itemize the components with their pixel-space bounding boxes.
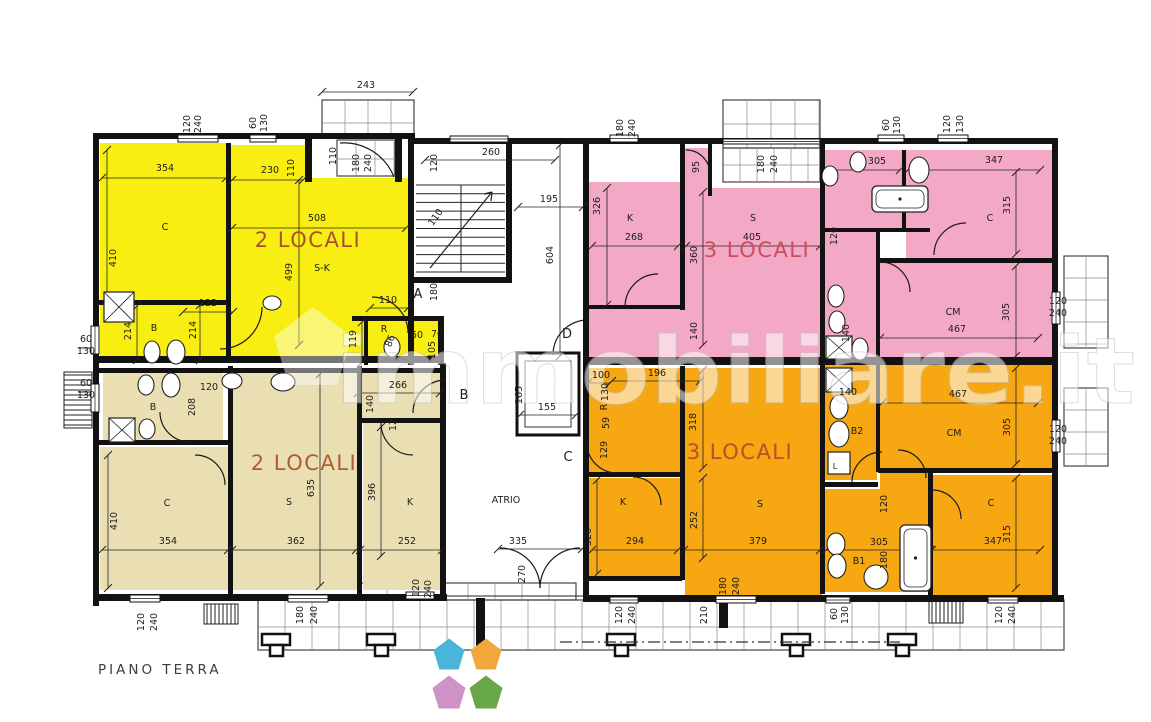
room-letter-label: B — [151, 323, 158, 334]
dimension-label: 260 — [482, 147, 500, 158]
dimension-label: 105 — [427, 341, 438, 359]
dimension-label: 100 — [592, 370, 610, 381]
terrace-pier — [262, 634, 290, 645]
room-letter-label: C — [162, 222, 169, 233]
dimension-label: 120 — [411, 579, 422, 597]
dimension-label: 360 — [689, 246, 700, 264]
wall — [226, 300, 231, 363]
dimension-label: 604 — [545, 246, 556, 264]
dimension-label: 140 — [839, 387, 857, 398]
dimension-label: 214 — [123, 322, 134, 340]
sanitary-fixture — [828, 554, 846, 578]
dimension-label: CM — [947, 428, 962, 439]
dimension-label: 130 — [600, 383, 611, 401]
dimension-label: 214 — [188, 321, 199, 339]
dimension-label: 12 — [388, 419, 399, 431]
dimension-label: 270 — [517, 565, 528, 583]
dimension-label: 70 — [431, 329, 443, 340]
dimension-label: 347 — [984, 536, 1002, 547]
terrace-pier — [790, 645, 803, 656]
dimension-label: 119 — [348, 330, 359, 348]
dimension-label: 354 — [156, 163, 174, 174]
dimension-label: 140 — [689, 322, 700, 340]
room-letter-label: C — [164, 498, 171, 509]
dimension-label: 305 — [868, 156, 886, 167]
dimension-label: 467 — [949, 389, 967, 400]
dimension-label: ATRIO — [492, 495, 520, 506]
dimension-label: 110 — [379, 295, 397, 306]
bathtub-drain — [898, 197, 901, 200]
terrace-pier — [615, 645, 628, 656]
sanitary-fixture — [167, 340, 185, 364]
wall — [305, 137, 312, 182]
dimension-label: 130 — [259, 114, 270, 132]
dimension-label: 120 — [136, 613, 147, 631]
sanitary-fixture — [144, 341, 160, 363]
dimension-label: B2 — [851, 426, 864, 437]
dimension-label: 95 — [691, 161, 702, 173]
hatch-strip — [204, 604, 238, 624]
room-letter-label: C — [987, 213, 994, 224]
room-letter-label: S — [757, 499, 763, 510]
wall — [680, 143, 685, 310]
dimension-label: 120 — [829, 227, 840, 245]
closet-box — [828, 452, 850, 474]
dimension-label: 379 — [749, 536, 767, 547]
wall — [395, 137, 402, 182]
dimension-label: 110 — [286, 159, 297, 177]
dimension-label: 335 — [509, 536, 527, 547]
dimension-label: 120 — [1049, 424, 1067, 435]
dimension-label: 165 — [514, 386, 525, 404]
dimension-label: 120 — [942, 115, 953, 133]
room-letter-label: K — [627, 213, 634, 224]
room-letter-label: B — [460, 388, 469, 403]
room-letter-label: B — [150, 402, 157, 413]
dimension-label: 180 — [351, 154, 362, 172]
terrace-pier — [782, 634, 810, 645]
dimension-label: 499 — [284, 263, 295, 281]
dimension-label: 180 — [615, 119, 626, 137]
room-letter-label: A — [414, 287, 423, 302]
dimension-label: 240 — [769, 155, 780, 173]
dimension-label: 130 — [77, 390, 95, 401]
wall — [878, 468, 1054, 473]
terrace-pier — [367, 634, 395, 645]
wall — [506, 143, 512, 283]
sanitary-fixture — [138, 375, 154, 395]
dimension-label: 240 — [309, 606, 320, 624]
terrace-pier — [888, 634, 916, 645]
apartment-label: 3 LOCALI — [687, 440, 793, 464]
dimension-label: 326 — [592, 197, 603, 215]
dimension-label: 60 — [248, 117, 259, 129]
terrace-pier — [896, 645, 909, 656]
dimension-label: 60 — [881, 119, 892, 131]
dimension-label: 243 — [357, 80, 375, 91]
dimension-label: 60 — [829, 608, 840, 620]
dimension-label: 180 — [879, 551, 890, 569]
apartment-label: 2 LOCALI — [255, 228, 361, 252]
dimension-label: 305 — [1002, 418, 1013, 436]
apartment-label: 3 LOCALI — [704, 238, 810, 262]
bathtub-drain — [914, 556, 917, 559]
room-letter-label: K — [620, 497, 627, 508]
dimension-label: 230 — [261, 165, 279, 176]
floor-label: PIANO TERRA — [98, 662, 222, 678]
terrace-pier — [375, 645, 388, 656]
dimension-label: 305 — [870, 537, 888, 548]
room-letter-label: S — [286, 497, 292, 508]
dimension-label: 120 — [1049, 296, 1067, 307]
dimension-label: 315 — [1002, 525, 1013, 543]
dimension-label: 396 — [367, 483, 378, 501]
dimension-label: 240 — [1049, 436, 1067, 447]
dimension-label: 140 — [365, 395, 376, 413]
room-letter-label: R — [599, 403, 610, 410]
room — [363, 423, 443, 590]
terrace-pier — [607, 634, 635, 645]
dimension-label: 467 — [948, 324, 966, 335]
dimension-label: 120 — [614, 606, 625, 624]
dimension-label: 129 — [599, 441, 610, 459]
dimension-label: 315 — [1002, 196, 1013, 214]
dimension-label: 240 — [1049, 308, 1067, 319]
floor-plan-svg: immobiliare.it354410C1202406013023011011… — [0, 0, 1151, 722]
room-letter-label: C — [988, 498, 995, 509]
dimension-label: 240 — [627, 119, 638, 137]
dimension-label: 180 — [756, 155, 767, 173]
room-letter-label: D — [562, 327, 572, 342]
sanitary-fixture — [822, 166, 838, 186]
dimension-label: 122 — [199, 298, 217, 309]
dimension-label: 140 — [841, 324, 852, 342]
dimension-label: 268 — [625, 232, 643, 243]
dimension-label: 240 — [627, 606, 638, 624]
dimension-label: 240 — [149, 613, 160, 631]
sanitary-fixture — [263, 296, 281, 310]
wall — [586, 305, 682, 309]
dimension-label: 180 — [429, 283, 440, 301]
apartment-label: 2 LOCALI — [251, 451, 357, 475]
sanitary-fixture — [828, 285, 844, 307]
terrace-pier — [270, 645, 283, 656]
dimension-label: 318 — [688, 413, 699, 431]
dimension-label: 252 — [689, 511, 700, 529]
dimension-label: 320 — [583, 528, 594, 546]
sanitary-fixture — [162, 373, 180, 397]
dimension-label: 130 — [892, 116, 903, 134]
dimension-label: 120 — [182, 115, 193, 133]
dimension-label: 294 — [626, 536, 644, 547]
dimension-label: 60 — [80, 378, 92, 389]
dimension-label: 354 — [159, 536, 177, 547]
dimension-label: 240 — [731, 577, 742, 595]
dimension-label: 347 — [985, 155, 1003, 166]
room-letter-label: L — [833, 462, 838, 471]
room-letter-label: K — [407, 497, 414, 508]
dimension-label: 240 — [423, 580, 434, 598]
room-letter-label: C — [563, 450, 572, 465]
dimension-label: 120 — [879, 495, 890, 513]
dimension-label: S-K — [314, 263, 330, 274]
wall — [228, 366, 233, 594]
dimension-label: 266 — [389, 380, 407, 391]
wall — [414, 277, 512, 283]
dimension-label: 240 — [1007, 606, 1018, 624]
room-letter-label: S — [750, 213, 756, 224]
dimension-label: 305 — [1001, 303, 1012, 321]
sanitary-fixture — [139, 419, 155, 439]
dimension-label: 195 — [540, 194, 558, 205]
dimension-label: 120 — [994, 606, 1005, 624]
dimension-label: 208 — [187, 398, 198, 416]
dimension-label: 130 — [955, 115, 966, 133]
dimension-label: 155 — [538, 402, 556, 413]
dimension-label: 110 — [328, 147, 339, 165]
dimension-label: B1 — [853, 556, 866, 567]
sanitary-fixture — [850, 152, 866, 172]
wall — [226, 143, 231, 302]
dimension-label: 196 — [648, 368, 666, 379]
dimension-label: 59 — [601, 417, 612, 429]
dimension-label: 120 — [200, 382, 218, 393]
dimension-label: 60 — [80, 334, 92, 345]
sanitary-fixture — [909, 157, 929, 183]
dimension-label: 240 — [363, 154, 374, 172]
dimension-label: 130 — [77, 346, 95, 357]
dimension-label: 410 — [109, 512, 120, 530]
dimension-label: 508 — [308, 213, 326, 224]
dimension-label: 180 — [718, 577, 729, 595]
dimension-label: 240 — [193, 115, 204, 133]
wall — [876, 258, 1054, 263]
dimension-label: 130 — [840, 606, 851, 624]
sanitary-fixture — [222, 373, 242, 389]
dimension-label: 120 — [429, 154, 440, 172]
hatch-strip — [929, 601, 963, 623]
dimension-label: 180 — [295, 606, 306, 624]
dimension-label: 50 — [411, 330, 423, 341]
dimension-label: 252 — [398, 536, 416, 547]
dimension-label: 210 — [699, 606, 710, 624]
wall — [820, 482, 878, 487]
dimension-label: CM — [946, 307, 961, 318]
sanitary-fixture — [827, 533, 845, 555]
dimension-label: 362 — [287, 536, 305, 547]
watermark-text: immobiliare.it — [335, 318, 1135, 425]
room — [588, 478, 680, 578]
dimension-label: 410 — [108, 249, 119, 267]
floorplan-canvas: immobiliare.it354410C1202406013023011011… — [0, 0, 1151, 722]
wall — [586, 576, 682, 581]
dimension-label: 635 — [306, 479, 317, 497]
